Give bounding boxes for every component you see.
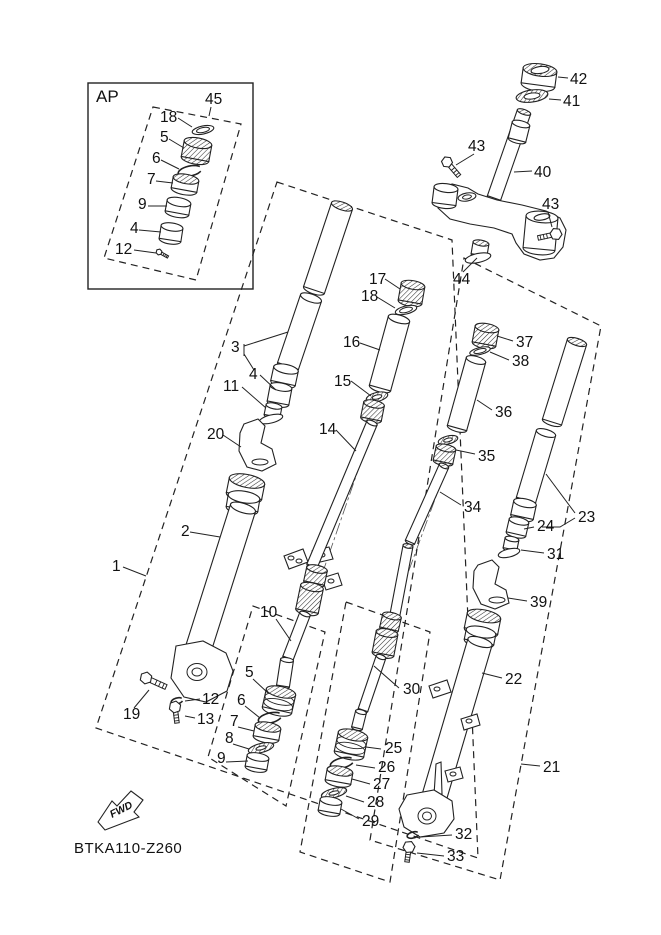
guard-bracket-20	[239, 419, 276, 471]
part-label-44: 44	[453, 271, 471, 288]
damper-rod-30	[358, 653, 387, 713]
inner-tube-23-upper	[541, 336, 587, 429]
lug-a	[284, 549, 308, 569]
leader-line-8	[233, 744, 249, 749]
ap-bushing-7	[170, 172, 199, 197]
ap-box-label: AP	[96, 87, 119, 106]
part-label-21: 21	[543, 759, 560, 776]
leader-line-17	[385, 279, 400, 289]
cap-bolt-37	[471, 322, 499, 351]
lug-ra	[429, 680, 451, 698]
part-label-29: 29	[362, 813, 379, 830]
diagram-code: BTKA110-Z260	[74, 840, 182, 857]
ap-spacer-4	[159, 221, 184, 245]
rebound-coil-b	[295, 581, 324, 618]
part-label-20: 20	[207, 426, 225, 443]
leader-line-21	[521, 764, 540, 766]
leader-line-43	[456, 154, 474, 165]
part-label-43: 43	[542, 196, 559, 213]
leader-line-9	[226, 761, 248, 762]
rebound-coil-d	[371, 627, 398, 660]
part-label-6: 6	[237, 692, 246, 709]
leader-line-29	[341, 809, 359, 819]
stem-sleeve	[507, 119, 530, 146]
part-label-19: 19	[123, 706, 140, 723]
part-drawings	[98, 62, 588, 863]
part-label-24: 24	[537, 518, 555, 535]
inner-tube-3-upper	[302, 199, 353, 297]
part-label-5: 5	[245, 664, 254, 681]
leader-line-28	[346, 796, 364, 802]
spring-tube-16	[368, 312, 410, 394]
leader-line-20	[223, 435, 241, 447]
leader-line-1	[123, 567, 146, 576]
part-label-3: 3	[231, 339, 240, 356]
part-label-16: 16	[343, 334, 360, 351]
leader-line-12	[134, 250, 156, 253]
bolt-33	[403, 842, 415, 863]
leader-line-14	[336, 430, 356, 451]
leader-line-38	[490, 352, 509, 360]
part-label-1: 1	[112, 558, 121, 575]
part-label-4: 4	[249, 366, 258, 383]
exploded-parts-diagram: 1234112019121310567891718161514302526272…	[0, 0, 661, 935]
leader-line-25	[366, 747, 381, 749]
leader-line-13	[185, 716, 195, 718]
part-label-10: 10	[260, 604, 278, 621]
part-label-22: 22	[505, 671, 522, 688]
inner-tube-23-lower	[515, 427, 556, 507]
part-label-37: 37	[516, 334, 533, 351]
bushing-7	[252, 720, 281, 745]
leader-line-37	[497, 336, 513, 341]
part-label-39: 39	[530, 594, 547, 611]
part-label-13: 13	[197, 711, 214, 728]
part-label-25: 25	[385, 740, 402, 757]
part-label-26: 26	[378, 759, 395, 776]
part-label-34: 34	[464, 499, 482, 516]
leader-line-41	[549, 99, 561, 100]
part-label-35: 35	[478, 448, 495, 465]
leader-line-7	[156, 181, 173, 183]
leader-line-2	[190, 532, 220, 537]
bushing-29	[317, 795, 342, 818]
leader-line-31	[521, 550, 544, 553]
part-label-45: 45	[205, 91, 222, 108]
rod-10-tip	[276, 657, 294, 690]
part-label-43: 43	[468, 138, 485, 155]
leader-line-11	[242, 387, 266, 408]
leader-line-3	[244, 332, 288, 346]
leader-line-34	[440, 492, 461, 505]
leader-line-5	[253, 679, 268, 693]
leader-line-42	[558, 77, 568, 78]
outer-tube-22-housing	[399, 790, 454, 837]
leader-line-10	[276, 619, 291, 641]
parts-diagram-page: 1234112019121310567891718161514302526272…	[0, 0, 661, 935]
bracket-left-boss	[432, 182, 459, 210]
ap-cap-5	[180, 135, 212, 166]
bushing-27	[324, 764, 353, 789]
part-label-12: 12	[115, 241, 132, 258]
guard-bracket-39	[473, 560, 509, 609]
leader-line-4	[139, 230, 161, 232]
part-label-17: 17	[369, 271, 386, 288]
part-label-12: 12	[202, 691, 219, 708]
part-label-9: 9	[217, 750, 226, 767]
damper-rod-10	[282, 610, 311, 662]
part-label-9: 9	[138, 196, 147, 213]
leader-line-39	[508, 598, 527, 601]
part-label-36: 36	[495, 404, 512, 421]
part-label-8: 8	[225, 730, 234, 747]
part-label-31: 31	[547, 546, 564, 563]
leader-line-5	[169, 139, 184, 148]
inner-tube-3-lower	[276, 291, 322, 374]
bolt-13	[169, 701, 180, 723]
leader-line-27	[352, 779, 370, 784]
leader-line-45	[209, 107, 211, 116]
leader-line-16	[360, 343, 380, 350]
race-41	[515, 88, 548, 104]
ap-o-ring-18	[191, 124, 214, 136]
part-label-27: 27	[373, 776, 390, 793]
part-label-18: 18	[361, 288, 378, 305]
leader-line-35	[456, 450, 475, 454]
leader-line-6	[245, 706, 260, 718]
leader-line-40	[514, 171, 532, 172]
part-label-23: 23	[578, 509, 595, 526]
part-label-6: 6	[152, 150, 161, 167]
part-label-4: 4	[130, 220, 139, 237]
part-label-7: 7	[230, 713, 239, 730]
leader-line-36	[477, 400, 492, 410]
leader-line-6	[161, 160, 179, 169]
bushing-9	[244, 751, 269, 774]
ap-screw-12	[156, 249, 169, 258]
outer-tube-2-body	[184, 500, 257, 659]
nut-44-flange	[464, 251, 491, 265]
part-label-33: 33	[447, 848, 464, 865]
part-label-2: 2	[181, 523, 190, 540]
spring-tube-36	[446, 354, 486, 434]
part-label-32: 32	[455, 826, 472, 843]
seal-cap-25	[333, 727, 369, 763]
part-label-11: 11	[223, 378, 239, 395]
leader-line-7	[238, 727, 254, 731]
part-label-41: 41	[563, 93, 580, 110]
damper-rod-34	[405, 462, 450, 546]
part-label-30: 30	[403, 681, 421, 698]
leader-line-18	[178, 118, 192, 127]
part-label-28: 28	[367, 794, 384, 811]
part-label-42: 42	[570, 71, 587, 88]
part-label-18: 18	[160, 109, 177, 126]
rod-30-tip	[351, 709, 367, 732]
bushing-31-flange	[497, 546, 520, 559]
ap-bushing-9	[164, 196, 191, 220]
bolt-19	[140, 672, 167, 689]
part-label-14: 14	[319, 421, 337, 438]
part-label-5: 5	[160, 129, 169, 146]
leader-line-26	[356, 765, 375, 768]
part-label-40: 40	[534, 164, 552, 181]
part-label-38: 38	[512, 353, 529, 370]
cap-bolt-17	[397, 279, 425, 309]
part-label-7: 7	[147, 171, 156, 188]
bolt-43-upper	[442, 157, 461, 177]
damper-rod-14	[306, 419, 378, 570]
leader-line-15	[351, 381, 371, 396]
part-label-15: 15	[334, 373, 351, 390]
leader-line-22	[482, 673, 502, 678]
leader-line-23	[546, 474, 575, 513]
leader-line-18	[377, 297, 395, 308]
